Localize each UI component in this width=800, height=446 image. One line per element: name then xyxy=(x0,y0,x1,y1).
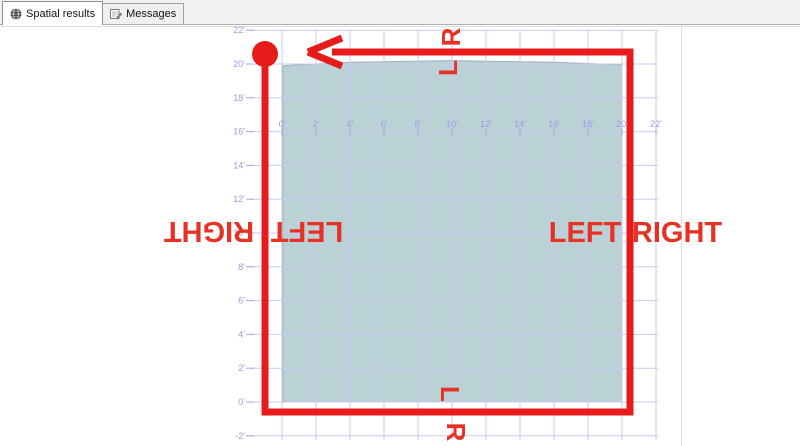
x-axis-label: 20' xyxy=(616,119,628,129)
spatial-plot-svg: 0'2'4'6'8'10'12'14'16'18'20'22'22'20'18'… xyxy=(0,0,800,446)
route-side-label: L xyxy=(433,60,463,76)
messages-icon xyxy=(110,8,122,20)
y-axis-label: 0' xyxy=(238,397,245,407)
y-axis-label: 18' xyxy=(233,93,245,103)
route-start-marker xyxy=(252,41,278,67)
tab-bar: Spatial results Messages xyxy=(0,0,800,25)
x-axis-label: 12' xyxy=(480,119,492,129)
tab-label: Spatial results xyxy=(26,8,95,20)
y-axis-label: 4' xyxy=(238,329,245,339)
route-side-label: R xyxy=(441,423,471,442)
x-axis-label: 2' xyxy=(313,119,320,129)
x-axis-label: 18' xyxy=(582,119,594,129)
globe-icon xyxy=(10,8,22,20)
x-axis-label: 16' xyxy=(548,119,560,129)
y-axis-label: 16' xyxy=(233,127,245,137)
y-axis-label: -2' xyxy=(235,431,245,441)
tab-spatial-results[interactable]: Spatial results xyxy=(2,1,103,25)
tab-label: Messages xyxy=(126,8,176,20)
y-axis-label: 12' xyxy=(233,194,245,204)
x-axis-label: 6' xyxy=(381,119,388,129)
spatial-plot-canvas[interactable]: 0'2'4'6'8'10'12'14'16'18'20'22'22'20'18'… xyxy=(0,0,800,446)
y-axis-label: 2' xyxy=(238,363,245,373)
x-axis-label: 4' xyxy=(347,119,354,129)
x-axis-label: 14' xyxy=(514,119,526,129)
x-axis-label: 0' xyxy=(279,119,286,129)
y-axis-label: 14' xyxy=(233,160,245,170)
route-side-label: RIGHT xyxy=(164,215,255,247)
route-side-label: L xyxy=(435,386,465,402)
y-axis-label: 8' xyxy=(238,262,245,272)
y-axis-label: 6' xyxy=(238,296,245,306)
x-axis-label: 10' xyxy=(446,119,458,129)
route-side-label: R xyxy=(436,27,466,46)
tab-messages[interactable]: Messages xyxy=(103,3,184,24)
y-axis-label: 22' xyxy=(233,25,245,35)
x-axis-label: 8' xyxy=(415,119,422,129)
route-side-label: LEFT xyxy=(549,217,622,249)
x-axis-label: 22' xyxy=(650,119,662,129)
route-side-label: RIGHT xyxy=(632,217,723,249)
route-side-label: LEFT xyxy=(270,215,343,247)
y-axis-label: 20' xyxy=(233,59,245,69)
